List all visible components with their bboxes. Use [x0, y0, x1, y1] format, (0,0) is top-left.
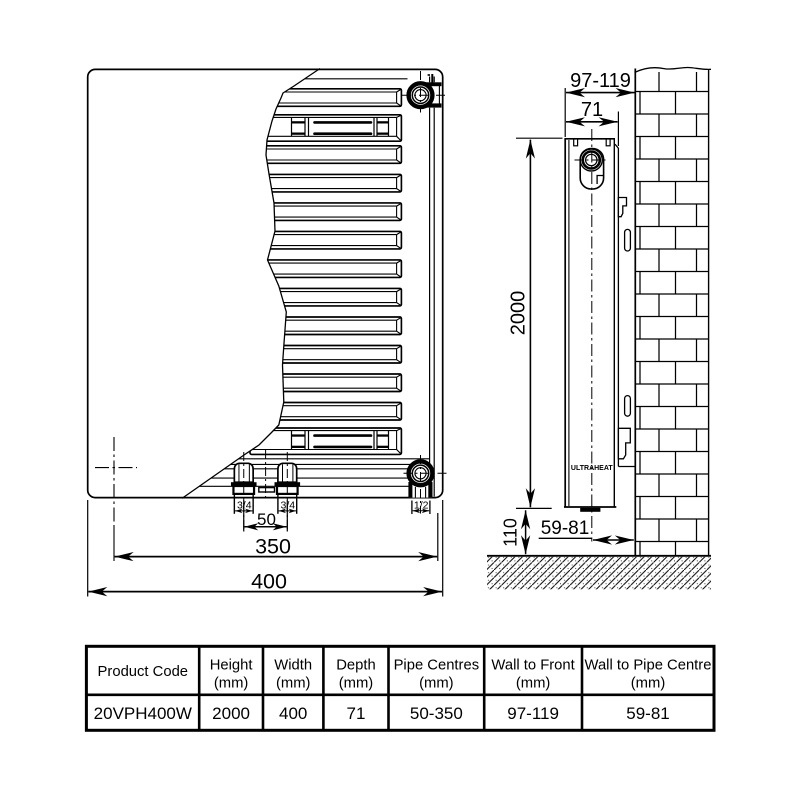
svg-text:110: 110: [501, 518, 521, 547]
svg-text:97-119: 97-119: [507, 704, 559, 723]
svg-text:50-350: 50-350: [410, 704, 463, 723]
svg-text:(mm): (mm): [516, 675, 551, 691]
svg-text:1/2: 1/2: [414, 499, 429, 511]
svg-text:59-81: 59-81: [541, 518, 590, 539]
svg-text:71: 71: [581, 99, 603, 121]
svg-text:2000: 2000: [508, 291, 530, 336]
svg-text:ULTRAHEAT: ULTRAHEAT: [571, 465, 613, 472]
svg-text:20VPH400W: 20VPH400W: [94, 704, 192, 723]
svg-text:(mm): (mm): [419, 675, 454, 691]
svg-text:(mm): (mm): [339, 675, 374, 691]
svg-text:Wall to Pipe Centre: Wall to Pipe Centre: [585, 657, 712, 673]
svg-text:Pipe Centres: Pipe Centres: [394, 657, 480, 673]
svg-text:(mm): (mm): [214, 675, 249, 691]
svg-text:97-119: 97-119: [570, 70, 631, 92]
svg-text:400: 400: [279, 704, 307, 723]
svg-text:350: 350: [255, 535, 291, 559]
svg-text:Width: Width: [274, 657, 312, 673]
svg-text:71: 71: [346, 704, 365, 723]
svg-text:2000: 2000: [212, 704, 250, 723]
svg-text:(mm): (mm): [631, 675, 666, 691]
svg-text:Depth: Depth: [336, 657, 376, 673]
svg-text:400: 400: [251, 570, 287, 594]
svg-text:Wall to Front: Wall to Front: [491, 657, 574, 673]
svg-text:Height: Height: [210, 657, 253, 673]
svg-text:(mm): (mm): [276, 675, 311, 691]
svg-text:Product Code: Product Code: [98, 664, 188, 680]
svg-text:59-81: 59-81: [626, 704, 669, 723]
